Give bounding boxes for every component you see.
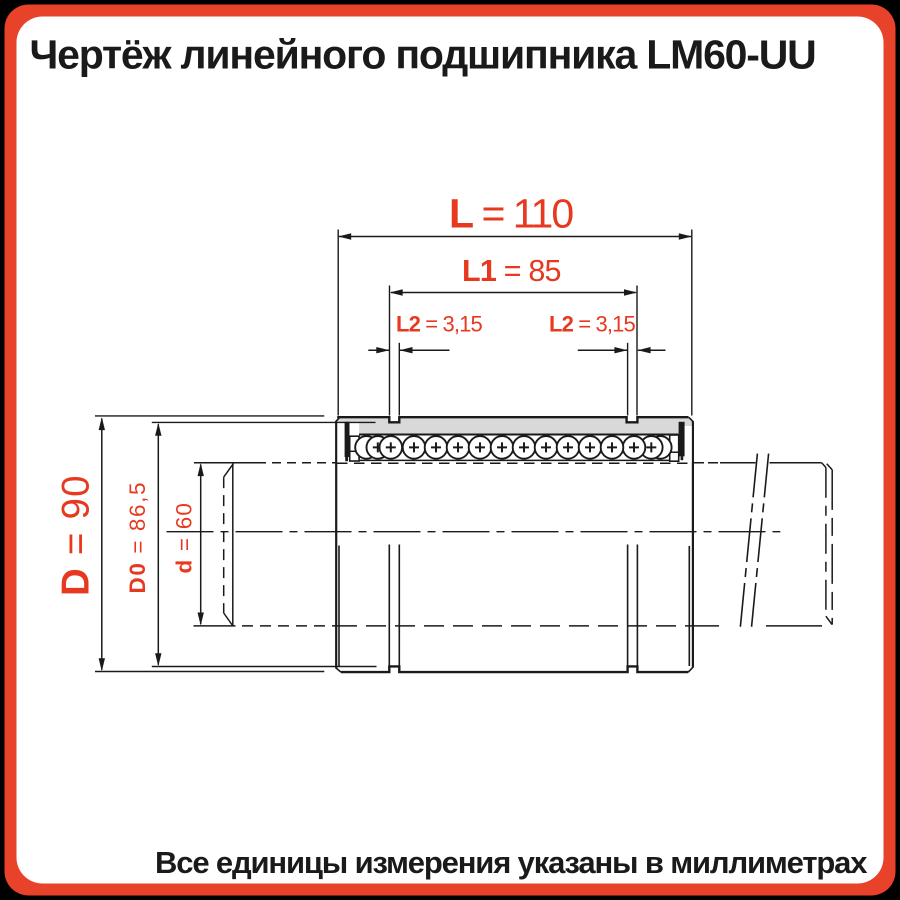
svg-text:D0 = 86,5: D0 = 86,5 — [125, 481, 150, 594]
svg-text:D = 90: D = 90 — [55, 474, 98, 596]
svg-text:L1 = 85: L1 = 85 — [462, 254, 561, 288]
svg-text:L = 110: L = 110 — [449, 191, 573, 237]
svg-text:L2 = 3,15: L2 = 3,15 — [549, 312, 636, 337]
svg-text:Все единицы измерения указаны: Все единицы измерения указаны в миллимет… — [155, 845, 868, 880]
svg-text:d = 60: d = 60 — [172, 502, 197, 574]
svg-text:Чертёж линейного подшипника LM: Чертёж линейного подшипника LM60-UU — [30, 31, 816, 77]
svg-text:L2 = 3,15: L2 = 3,15 — [396, 312, 483, 337]
